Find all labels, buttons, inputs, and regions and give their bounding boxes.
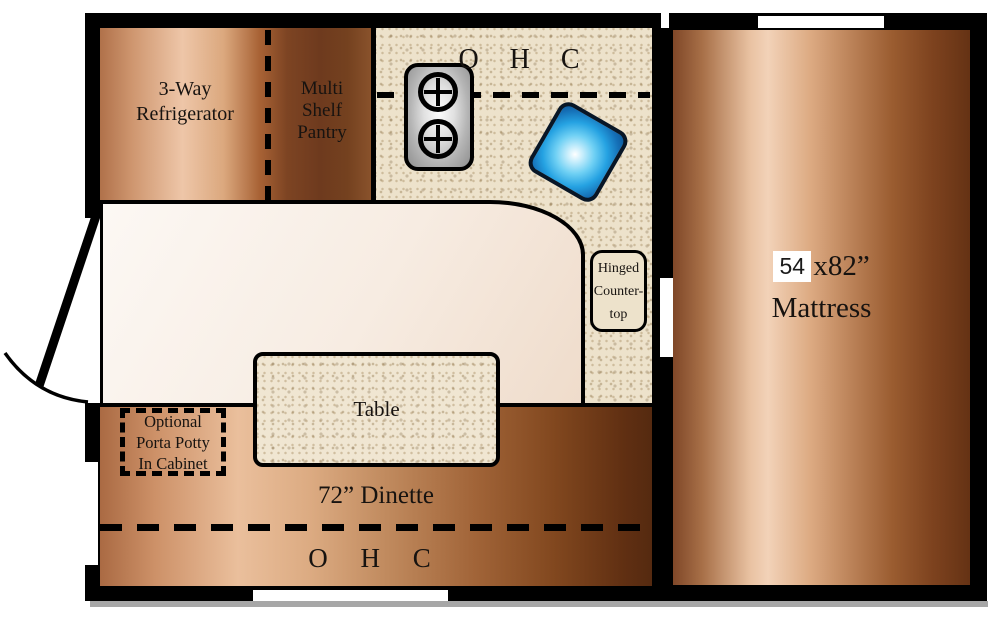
floor-plan: 3-Way Refrigerator Multi Shelf Pantry O …: [0, 0, 1000, 620]
mattress-size-patch: 54: [773, 251, 811, 282]
porta-potty-line2: Porta Potty: [136, 432, 210, 453]
pantry-label: Multi Shelf Pantry: [272, 76, 372, 146]
pantry-label-line2: Shelf: [302, 100, 342, 122]
window-divider-wall: [660, 278, 673, 357]
drop-shadow: [90, 601, 988, 607]
mattress-size-label: 54 x82”: [773, 250, 869, 283]
refrigerator-label-line1: 3-Way: [159, 77, 212, 102]
porta-potty-line3: In Cabinet: [138, 453, 207, 474]
overhead-cabinet-top-label: O H C: [400, 42, 650, 78]
hinged-countertop-line3: top: [610, 303, 628, 326]
mattress-text: 54 x82” Mattress: [673, 250, 970, 325]
dinette-fold-dashed-line: [100, 524, 652, 531]
burner-icon: [418, 72, 458, 112]
pantry-label-line3: Pantry: [297, 122, 347, 144]
mattress-size-suffix: x82”: [813, 250, 869, 283]
wall-gap-notch: [661, 13, 669, 28]
table-label: Table: [353, 397, 399, 422]
mattress-label: Mattress: [772, 292, 872, 325]
hinged-countertop-line2: Counter-: [594, 280, 644, 303]
door-swing-icon: [0, 200, 110, 415]
stove-icon: [404, 63, 474, 171]
overhead-cabinet-bottom-label: O H C: [100, 540, 652, 576]
refrigerator-label-line2: Refrigerator: [136, 102, 234, 127]
porta-potty-box: Optional Porta Potty In Cabinet: [120, 408, 226, 476]
refrigerator-label: 3-Way Refrigerator: [100, 72, 270, 132]
window-top: [758, 16, 884, 28]
burner-icon: [418, 119, 458, 159]
porta-potty-line1: Optional: [144, 411, 202, 432]
hinged-countertop-box: Hinged Counter- top: [590, 250, 647, 332]
hinged-countertop-line1: Hinged: [598, 257, 639, 280]
window-left: [85, 462, 98, 565]
table: Table: [253, 352, 500, 467]
dinette-label: 72” Dinette: [100, 480, 652, 512]
pantry-label-line1: Multi: [301, 78, 343, 100]
window-bottom: [253, 590, 448, 601]
